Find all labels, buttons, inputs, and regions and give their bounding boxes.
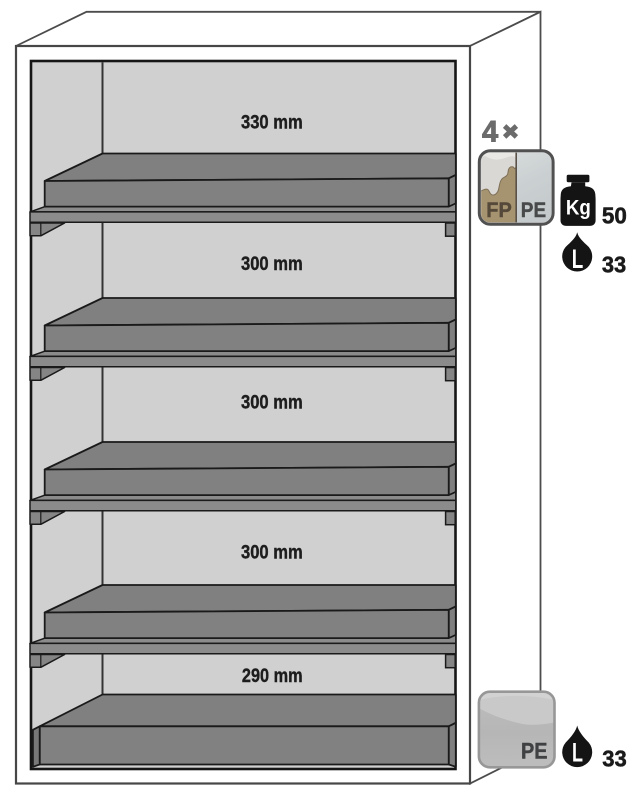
svg-text:33: 33 [602, 251, 626, 277]
svg-text:PE: PE [521, 739, 548, 764]
svg-text:Kg: Kg [566, 195, 591, 219]
svg-text:300 mm: 300 mm [241, 542, 303, 563]
svg-text:330 mm: 330 mm [241, 112, 303, 133]
svg-text:50: 50 [602, 203, 627, 229]
svg-text:33: 33 [602, 745, 627, 771]
svg-text:300 mm: 300 mm [241, 254, 303, 275]
svg-text:L: L [572, 738, 583, 768]
svg-text:FP: FP [486, 198, 512, 222]
svg-text:290 mm: 290 mm [242, 666, 303, 687]
svg-text:PE: PE [521, 198, 546, 222]
svg-text:L: L [572, 244, 584, 274]
svg-text:300 mm: 300 mm [241, 392, 303, 413]
svg-text:4: 4 [482, 116, 499, 149]
